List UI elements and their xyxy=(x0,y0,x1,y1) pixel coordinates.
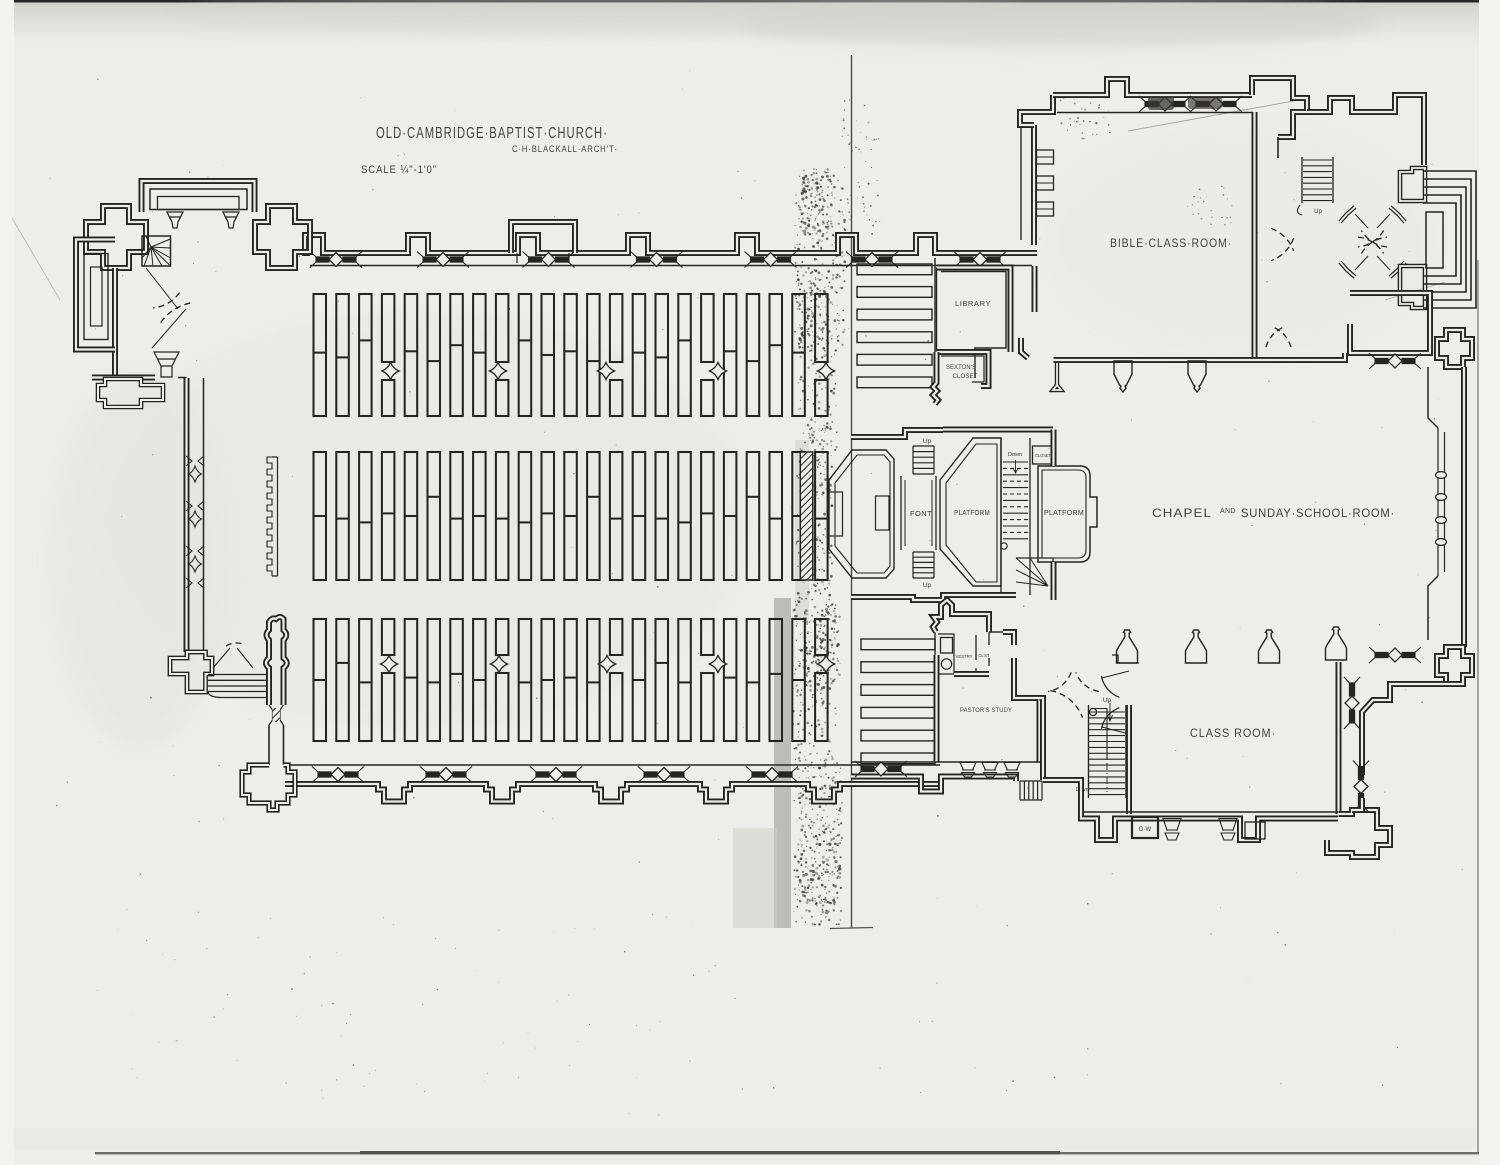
svg-text:Up: Up xyxy=(923,438,932,445)
svg-text:SEXTON'S: SEXTON'S xyxy=(946,364,976,371)
svg-text:Up: Up xyxy=(1103,697,1112,704)
svg-text:AND: AND xyxy=(1220,508,1236,515)
svg-text:C·H·BLACKALL·ARCH'T·: C·H·BLACKALL·ARCH'T· xyxy=(512,144,618,154)
svg-text:SCALE ¼"-1'0": SCALE ¼"-1'0" xyxy=(361,164,437,176)
svg-text:LIBRARY: LIBRARY xyxy=(955,299,991,308)
svg-text:PLATFORM: PLATFORM xyxy=(1044,508,1084,517)
svg-text:SUNDAY·SCHOOL·ROOM·: SUNDAY·SCHOOL·ROOM· xyxy=(1241,506,1395,520)
svg-text:Up: Up xyxy=(1314,209,1322,215)
svg-text:D·W: D·W xyxy=(1139,827,1151,833)
svg-text:CL'ST: CL'ST xyxy=(979,653,990,658)
svg-text:CLASS ROOM·: CLASS ROOM· xyxy=(1190,726,1276,740)
svg-text:PLATFORM: PLATFORM xyxy=(954,510,990,517)
svg-text:BIBLE·CLASS·ROOM·: BIBLE·CLASS·ROOM· xyxy=(1110,236,1232,250)
svg-text:OLD·CAMBRIDGE·BAPTIST·CHURCH·: OLD·CAMBRIDGE·BAPTIST·CHURCH· xyxy=(376,125,608,142)
svg-text:CLOSET: CLOSET xyxy=(953,373,978,380)
svg-text:Down: Down xyxy=(1008,452,1022,458)
svg-text:Up: Up xyxy=(923,582,932,589)
svg-text:VESTRY: VESTRY xyxy=(956,654,973,659)
svg-text:CHAPEL: CHAPEL xyxy=(1152,506,1212,520)
svg-text:FONT: FONT xyxy=(910,509,932,518)
svg-text:PASTOR'S STUDY: PASTOR'S STUDY xyxy=(960,707,1012,714)
svg-text:CLOSET: CLOSET xyxy=(1035,453,1051,458)
